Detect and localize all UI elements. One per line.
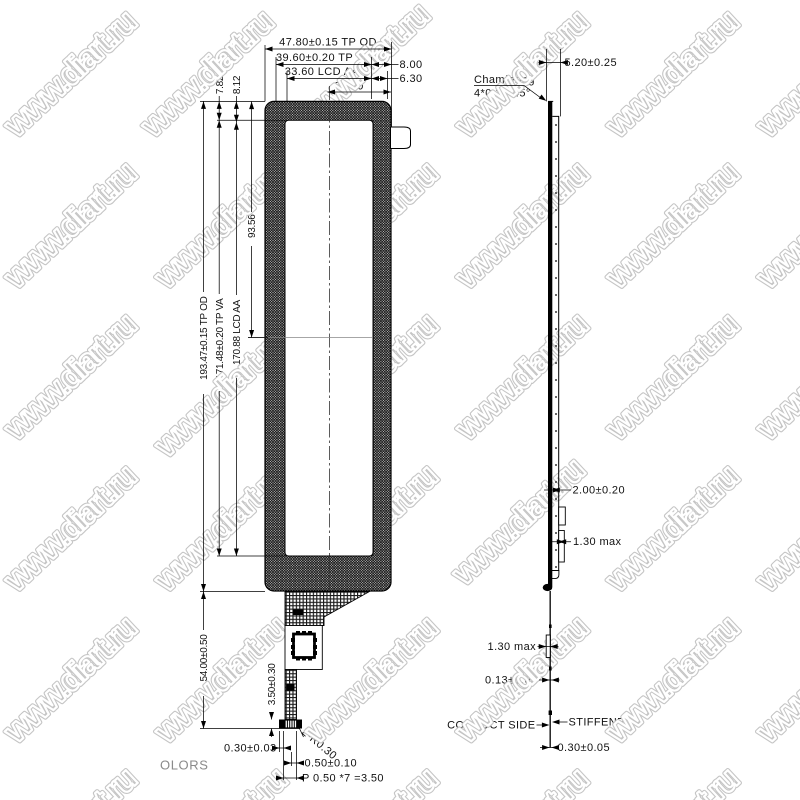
- svg-text:0.30±0.05: 0.30±0.05: [558, 742, 610, 754]
- svg-text:P 0.50 *7 =3.50: P 0.50 *7 =3.50: [302, 773, 384, 785]
- svg-text:193.47±0.15 TP OD: 193.47±0.15 TP OD: [199, 296, 210, 379]
- svg-text:6.30: 6.30: [400, 73, 423, 85]
- svg-text:8.00: 8.00: [400, 59, 423, 71]
- svg-text:0.30±0.03: 0.30±0.03: [224, 743, 276, 755]
- svg-text:5.20±0.25: 5.20±0.25: [565, 57, 617, 69]
- svg-text:8.12: 8.12: [232, 75, 243, 94]
- svg-text:3.50±0.30: 3.50±0.30: [267, 663, 278, 705]
- svg-text:OLORS: OLORS: [160, 758, 209, 773]
- svg-text:1.30 max: 1.30 max: [573, 536, 622, 548]
